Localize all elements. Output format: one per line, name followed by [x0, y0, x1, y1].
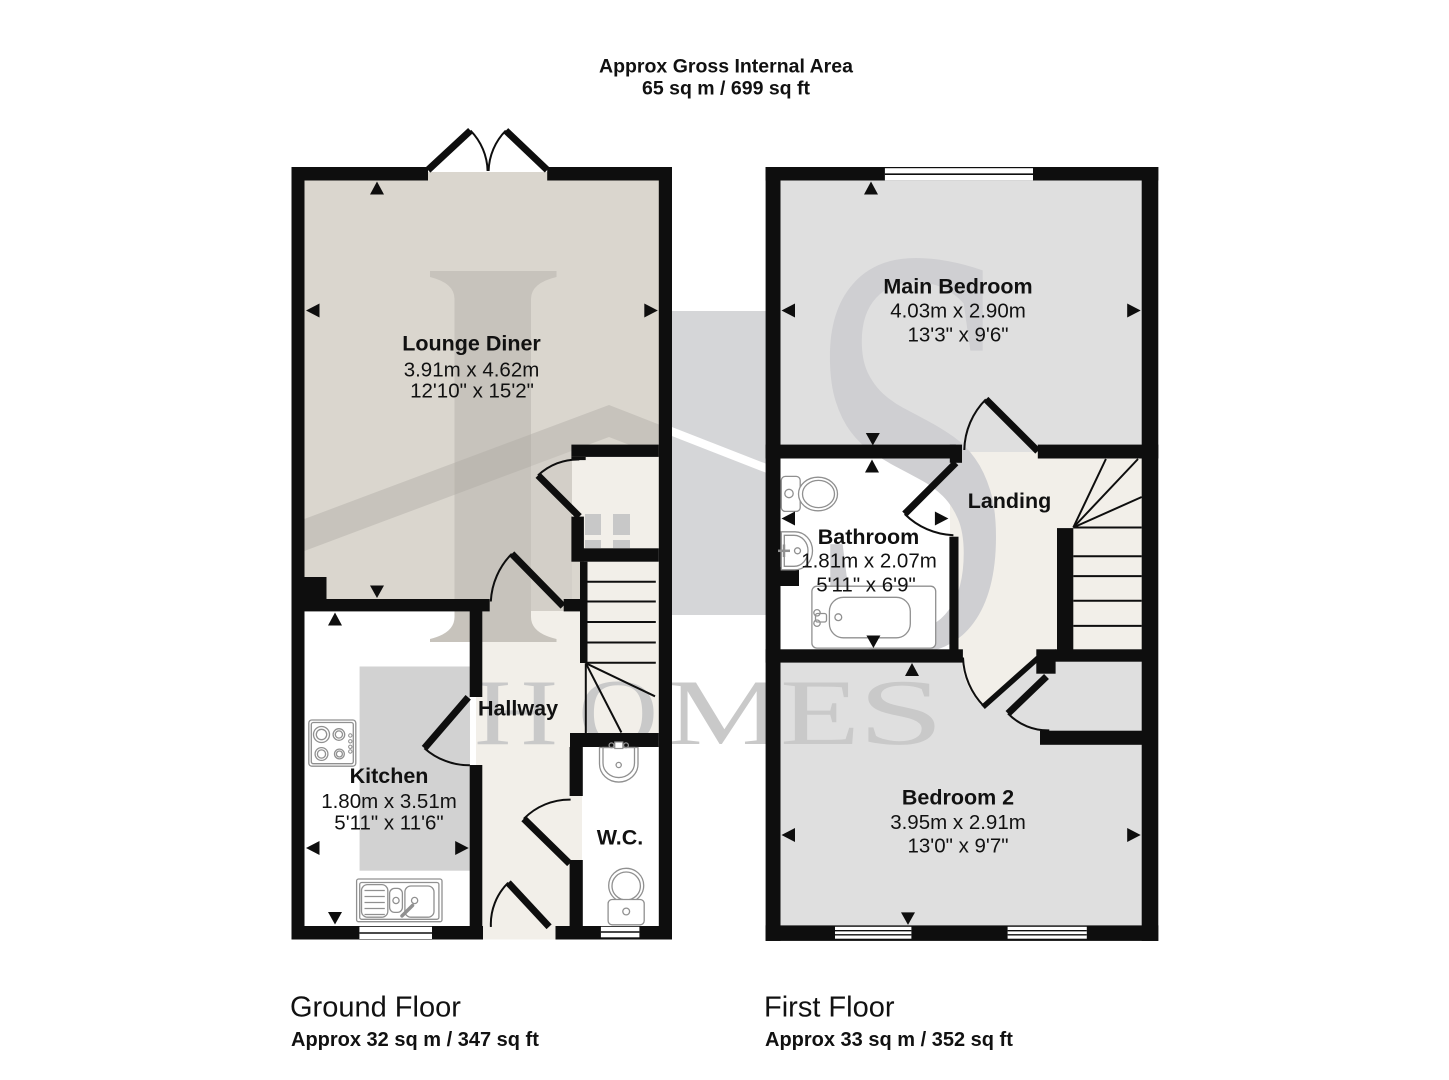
svg-text:Kitchen: Kitchen — [350, 764, 429, 788]
svg-text:5'11" x 6'9": 5'11" x 6'9" — [816, 574, 916, 597]
svg-text:Approx 32 sq m / 347 sq ft: Approx 32 sq m / 347 sq ft — [291, 1029, 539, 1051]
svg-text:Approx Gross Internal Area: Approx Gross Internal Area — [599, 56, 853, 78]
svg-text:Landing: Landing — [968, 489, 1052, 513]
svg-text:13'3" x 9'6": 13'3" x 9'6" — [907, 324, 1008, 347]
svg-text:3.91m x 4.62m: 3.91m x 4.62m — [404, 359, 540, 382]
svg-text:12'10" x 15'2": 12'10" x 15'2" — [410, 380, 534, 403]
svg-text:Approx 33 sq m / 352 sq ft: Approx 33 sq m / 352 sq ft — [765, 1029, 1013, 1051]
svg-text:Lounge Diner: Lounge Diner — [402, 332, 541, 356]
svg-text:Bedroom 2: Bedroom 2 — [902, 786, 1014, 810]
svg-text:3.95m x 2.91m: 3.95m x 2.91m — [890, 811, 1026, 834]
svg-text:Hallway: Hallway — [478, 697, 558, 721]
svg-text:W.C.: W.C. — [597, 826, 644, 850]
svg-text:5'11" x 11'6": 5'11" x 11'6" — [334, 812, 443, 835]
svg-text:65 sq m / 699 sq ft: 65 sq m / 699 sq ft — [642, 78, 810, 100]
svg-text:4.03m x 2.90m: 4.03m x 2.90m — [890, 300, 1026, 323]
svg-text:E: E — [780, 661, 860, 765]
svg-text:Bathroom: Bathroom — [818, 525, 920, 549]
svg-text:1.80m x 3.51m: 1.80m x 3.51m — [321, 790, 457, 813]
svg-text:Ground Floor: Ground Floor — [290, 992, 461, 1024]
svg-text:13'0" x 9'7": 13'0" x 9'7" — [907, 835, 1008, 858]
svg-text:1.81m x 2.07m: 1.81m x 2.07m — [801, 550, 937, 573]
svg-text:S: S — [858, 660, 944, 764]
svg-text:First Floor: First Floor — [764, 992, 895, 1024]
svg-text:Main Bedroom: Main Bedroom — [883, 275, 1032, 299]
